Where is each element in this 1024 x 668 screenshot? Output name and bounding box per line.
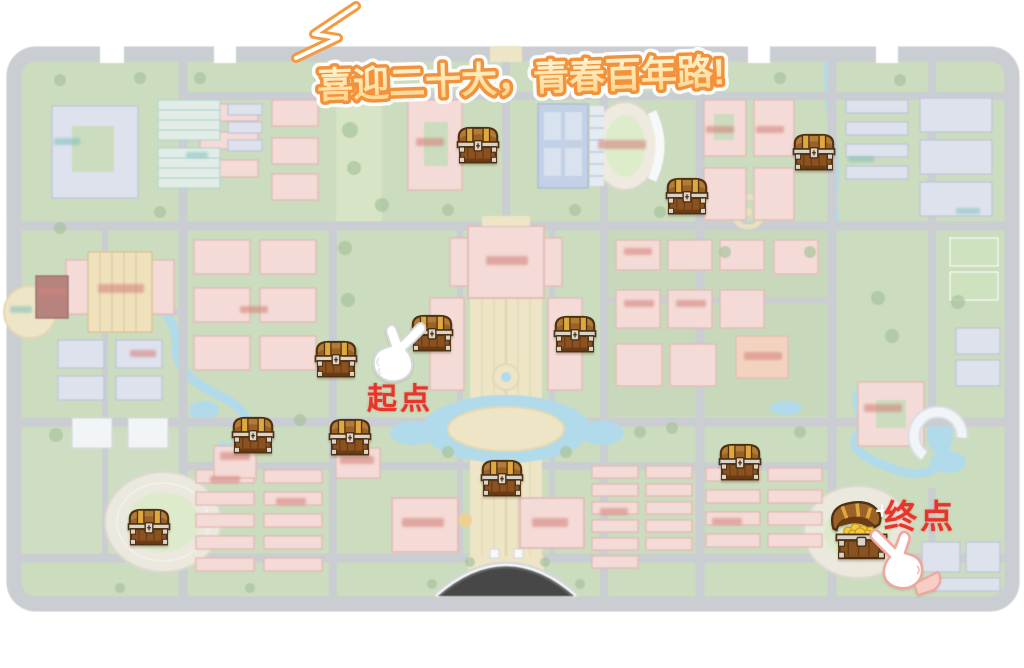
treasure-chest[interactable] (231, 414, 275, 455)
treasure-chest[interactable] (456, 124, 500, 165)
treasure-chest[interactable] (127, 506, 171, 547)
start-point-label: 起点 (367, 374, 433, 418)
pointing-hand-up-left-icon (868, 528, 944, 596)
treasure-hunt-map-screen: 喜迎二十大，青春百年路! 喜迎二十大，青春百年路! (0, 0, 1024, 668)
treasure-chest[interactable] (718, 441, 762, 482)
end-point-label: 终点 (884, 490, 956, 538)
treasure-chest[interactable] (792, 131, 836, 172)
treasure-chest[interactable] (328, 416, 372, 457)
treasure-chest[interactable] (480, 457, 524, 498)
treasure-chest[interactable] (553, 313, 597, 354)
treasure-chest[interactable] (314, 338, 358, 379)
treasure-chest[interactable] (665, 175, 709, 216)
